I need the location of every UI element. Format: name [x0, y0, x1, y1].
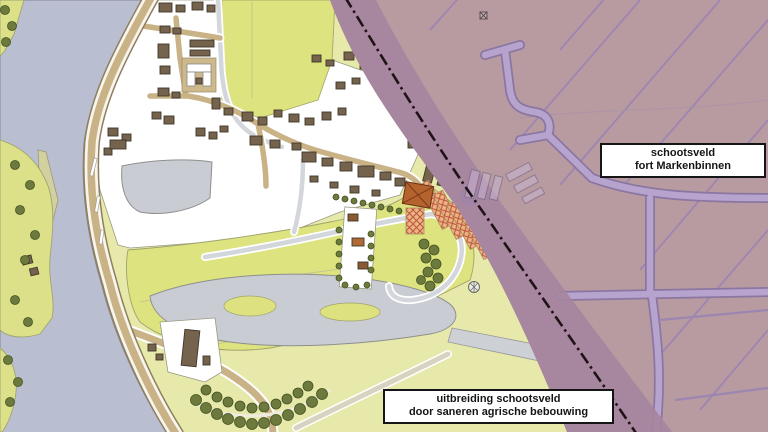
map-canvas: [0, 0, 768, 432]
zone-label-line: fort Markenbinnen: [606, 160, 760, 173]
crossed-square-marker: [480, 12, 487, 19]
circle-cross-marker: [469, 281, 480, 293]
zone-label-line: schootsveld: [606, 147, 760, 160]
zone-label-schootsveld: schootsveld fort Markenbinnen: [600, 143, 766, 178]
planning-map: schootsveld fort Markenbinnen uitbreidin…: [0, 0, 768, 432]
farm-building: [402, 182, 433, 209]
zone-label-uitbreiding: uitbreiding schootsveld door saneren agr…: [383, 389, 614, 424]
zone-label-line: uitbreiding schootsveld: [389, 393, 608, 406]
zone-label-line: door saneren agrische bebouwing: [389, 406, 608, 419]
